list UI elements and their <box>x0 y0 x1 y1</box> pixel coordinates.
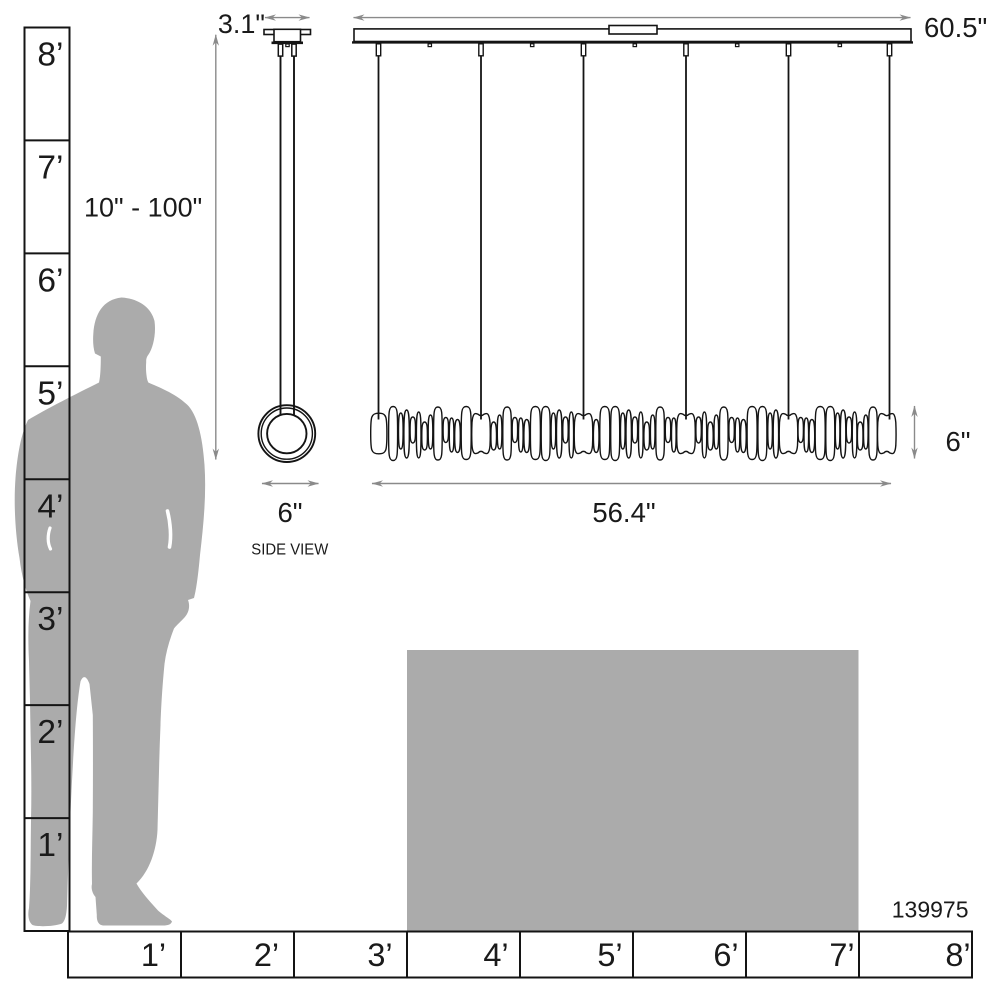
svg-text:6": 6" <box>277 497 302 528</box>
svg-text:7’: 7’ <box>37 149 63 186</box>
svg-text:2’: 2’ <box>37 714 63 751</box>
svg-text:10" - 100": 10" - 100" <box>84 193 202 223</box>
svg-text:4’: 4’ <box>37 488 63 525</box>
svg-text:1’: 1’ <box>37 827 63 864</box>
svg-text:SIDE VIEW: SIDE VIEW <box>251 542 329 559</box>
svg-text:8’: 8’ <box>945 937 970 973</box>
svg-text:4’: 4’ <box>483 937 508 973</box>
svg-text:1’: 1’ <box>141 937 166 973</box>
svg-text:6’: 6’ <box>713 937 738 973</box>
svg-text:3’: 3’ <box>367 937 392 973</box>
svg-text:139975: 139975 <box>892 897 969 923</box>
svg-text:5’: 5’ <box>37 375 63 412</box>
svg-text:6": 6" <box>945 426 970 457</box>
svg-text:3’: 3’ <box>37 601 63 638</box>
svg-text:60.5": 60.5" <box>924 12 987 43</box>
svg-text:5’: 5’ <box>597 937 622 973</box>
svg-text:7’: 7’ <box>829 937 854 973</box>
svg-text:6’: 6’ <box>37 262 63 299</box>
svg-text:8’: 8’ <box>37 37 63 74</box>
svg-text:56.4": 56.4" <box>592 497 655 528</box>
svg-text:2’: 2’ <box>254 937 279 973</box>
svg-text:3.1": 3.1" <box>218 9 265 39</box>
